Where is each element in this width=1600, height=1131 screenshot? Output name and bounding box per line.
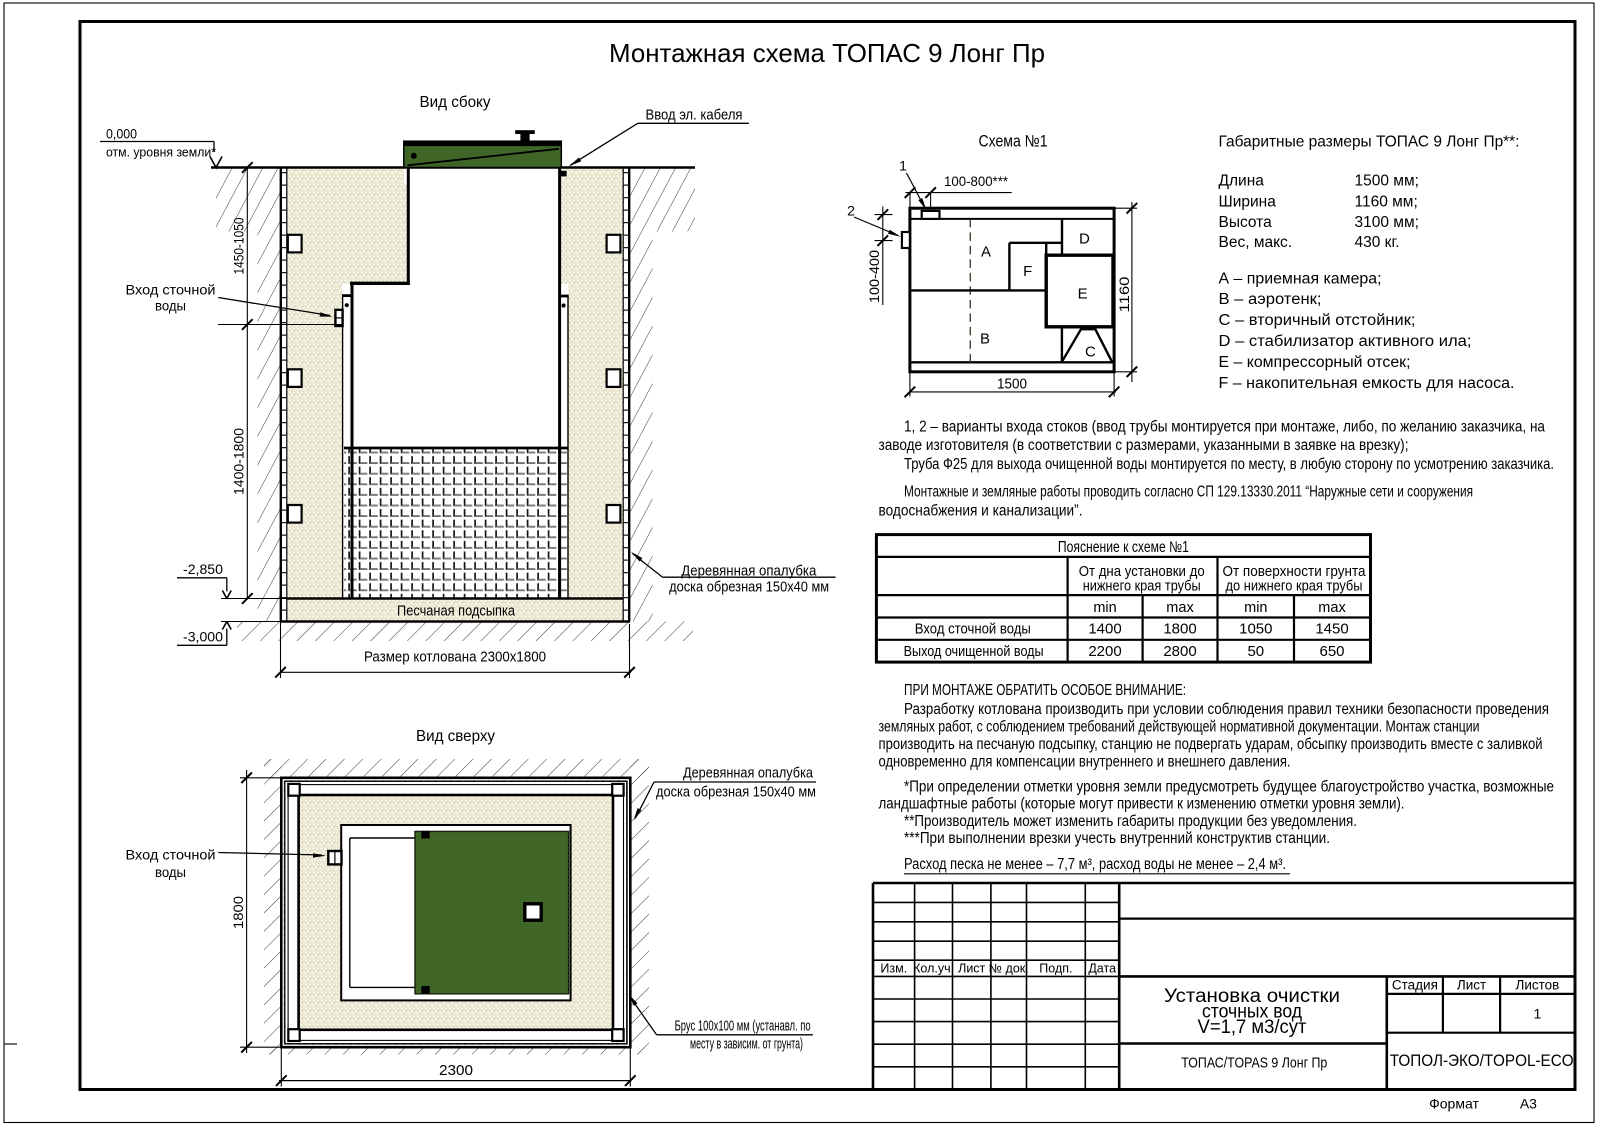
svg-text:Лист: Лист xyxy=(958,961,985,975)
svg-text:1800: 1800 xyxy=(230,896,246,929)
svg-text:1500 мм;: 1500 мм; xyxy=(1355,173,1419,190)
svg-text:100-400: 100-400 xyxy=(866,250,882,303)
svg-text:2300: 2300 xyxy=(439,1062,473,1079)
svg-text:№ док.: № док. xyxy=(989,961,1029,975)
svg-text:Песчаная подсыпка: Песчаная подсыпка xyxy=(397,603,516,620)
svg-text:1: 1 xyxy=(899,158,907,174)
svg-text:0,000: 0,000 xyxy=(106,126,137,142)
svg-text:заводе изготовителя (в соответ: заводе изготовителя (в соответствии с ра… xyxy=(879,437,1409,454)
svg-text:Формат: Формат xyxy=(1429,1095,1479,1111)
svg-text:Вид сбоку: Вид сбоку xyxy=(420,94,491,111)
svg-text:Ширина: Ширина xyxy=(1219,193,1277,210)
svg-text:Вход сточной: Вход сточной xyxy=(126,848,216,863)
svg-text:3100 мм;: 3100 мм; xyxy=(1355,214,1419,231)
svg-text:1400-1800: 1400-1800 xyxy=(231,428,247,495)
svg-text:1450-1050: 1450-1050 xyxy=(231,217,247,274)
svg-text:Ввод эл. кабеля: Ввод эл. кабеля xyxy=(646,108,743,124)
svg-text:50: 50 xyxy=(1247,643,1264,660)
svg-text:Стадия: Стадия xyxy=(1392,978,1438,993)
svg-text:Монтажные и земляные работы пр: Монтажные и земляные работы проводить со… xyxy=(904,483,1473,500)
svg-text:C: C xyxy=(1085,344,1096,361)
svg-text:Кол.уч.: Кол.уч. xyxy=(913,961,954,975)
svg-text:D – стабилизатор активного ила: D – стабилизатор активного ила; xyxy=(1219,333,1472,350)
svg-text:*При определении отметки уровн: *При определении отметки уровня земли пр… xyxy=(904,779,1554,796)
svg-text:нижнего края трубы: нижнего края трубы xyxy=(1083,578,1201,595)
svg-text:V=1,7 м3/сут: V=1,7 м3/сут xyxy=(1198,1017,1307,1038)
svg-text:430 кг.: 430 кг. xyxy=(1355,234,1400,251)
svg-text:B: B xyxy=(980,331,990,348)
svg-text:max: max xyxy=(1166,600,1194,616)
svg-text:**Производитель может изменить: **Производитель может изменить габариты … xyxy=(904,813,1357,830)
svg-text:1500: 1500 xyxy=(997,377,1027,393)
svg-text:-3,000: -3,000 xyxy=(183,629,223,645)
svg-text:min: min xyxy=(1093,600,1116,616)
svg-text:до нижнего края трубы: до нижнего края трубы xyxy=(1226,578,1363,595)
svg-text:2: 2 xyxy=(847,203,855,219)
svg-text:2200: 2200 xyxy=(1088,643,1121,660)
svg-text:воды: воды xyxy=(155,865,186,880)
svg-text:Расход песка не менее – 7,7 м³: Расход песка не менее – 7,7 м³, расход в… xyxy=(904,856,1286,873)
svg-text:2800: 2800 xyxy=(1163,643,1196,660)
svg-text:Лист: Лист xyxy=(1457,978,1486,993)
svg-text:ТОПОЛ-ЭКО/TOPOL-ECO: ТОПОЛ-ЭКО/TOPOL-ECO xyxy=(1390,1052,1574,1070)
svg-text:1800: 1800 xyxy=(1163,621,1196,638)
svg-text:А3: А3 xyxy=(1520,1095,1537,1111)
svg-text:Листов: Листов xyxy=(1515,978,1559,993)
svg-text:месту в зависим. от грунта): месту в зависим. от грунта) xyxy=(690,1037,803,1053)
svg-text:F – накопительная емкость для: F – накопительная емкость для насоса. xyxy=(1219,375,1515,392)
svg-text:Труба Ф25 для выхода очищенной: Труба Ф25 для выхода очищенной воды монт… xyxy=(904,456,1554,473)
svg-text:D: D xyxy=(1079,231,1090,248)
svg-text:1050: 1050 xyxy=(1239,621,1272,638)
svg-text:E: E xyxy=(1078,286,1088,303)
svg-text:Габаритные размеры ТОПАС 9 Лон: Габаритные размеры ТОПАС 9 Лонг Пр**: xyxy=(1219,134,1520,151)
svg-text:С – вторичный отстойник;: С – вторичный отстойник; xyxy=(1219,312,1416,329)
svg-text:производить на песчаную подсып: производить на песчаную подсыпку, станци… xyxy=(879,736,1543,753)
svg-text:Вес, макс.: Вес, макс. xyxy=(1219,234,1293,251)
svg-text:1, 2 – варианты входа стоков: 1, 2 – варианты входа стоков (ввод трубы… xyxy=(904,418,1545,435)
svg-text:земляных работ, с соблюдением: земляных работ, с соблюдением требований… xyxy=(879,718,1480,735)
svg-text:Дата: Дата xyxy=(1088,961,1116,975)
svg-text:Вход сточной воды: Вход сточной воды xyxy=(915,621,1031,638)
svg-text:min: min xyxy=(1244,600,1267,616)
svg-text:Деревянная опалубка: Деревянная опалубка xyxy=(683,765,814,781)
svg-text:водоснабжения и канализации”.: водоснабжения и канализации”. xyxy=(879,503,1083,520)
svg-text:1160 мм;: 1160 мм; xyxy=(1355,193,1418,210)
svg-text:Брус 100х100 мм (устанавл. по: Брус 100х100 мм (устанавл. по xyxy=(675,1019,811,1035)
svg-text:A: A xyxy=(981,244,991,261)
svg-text:650: 650 xyxy=(1319,643,1344,660)
svg-text:1: 1 xyxy=(1534,1006,1542,1022)
svg-text:Выход очищенной воды: Выход очищенной воды xyxy=(904,643,1044,660)
svg-text:Вид сверху: Вид сверху xyxy=(416,728,495,745)
svg-text:ТОПАС/TOPAS 9 Лонг Пр: ТОПАС/TOPAS 9 Лонг Пр xyxy=(1181,1055,1327,1072)
svg-text:E – компрессорный отсек;: E – компрессорный отсек; xyxy=(1219,354,1411,371)
svg-text:1160: 1160 xyxy=(1116,276,1132,312)
svg-text:Пояснение к схеме №1: Пояснение к схеме №1 xyxy=(1058,539,1189,556)
svg-text:-2,850: -2,850 xyxy=(183,561,223,577)
svg-text:F: F xyxy=(1023,263,1032,280)
svg-text:100-800***: 100-800*** xyxy=(944,173,1009,189)
svg-text:доска обрезная 150х40 мм: доска обрезная 150х40 мм xyxy=(669,580,829,596)
svg-text:Длина: Длина xyxy=(1219,173,1265,190)
svg-text:Подп.: Подп. xyxy=(1039,961,1072,975)
svg-text:Разработку котлована производи: Разработку котлована производить при усл… xyxy=(904,701,1549,718)
svg-text:ландшафтные работы (которые мо: ландшафтные работы (которые могут привес… xyxy=(879,796,1405,813)
svg-text:1450: 1450 xyxy=(1315,621,1348,638)
svg-text:Вход сточной: Вход сточной xyxy=(126,283,216,298)
svg-text:Размер котлована 2300х1800: Размер котлована 2300х1800 xyxy=(364,649,546,666)
svg-text:max: max xyxy=(1318,600,1346,616)
svg-text:Изм.: Изм. xyxy=(880,961,907,975)
svg-text:одновременно для компенсации в: одновременно для компенсации внутреннего… xyxy=(879,753,1291,770)
svg-text:воды: воды xyxy=(155,299,186,314)
svg-text:ПРИ МОНТАЖЕ ОБРАТИТЬ ОСОБОЕ ВН: ПРИ МОНТАЖЕ ОБРАТИТЬ ОСОБОЕ ВНИМАНИЕ: xyxy=(904,682,1186,699)
svg-text:отм. уровня земли*: отм. уровня земли* xyxy=(106,145,216,160)
svg-text:доска обрезная 150х40 мм: доска обрезная 150х40 мм xyxy=(656,785,816,801)
svg-text:Высота: Высота xyxy=(1219,214,1273,231)
svg-text:***При выполнении врезки учест: ***При выполнении врезки учесть внутренн… xyxy=(904,830,1330,847)
svg-text:Монтажная схема ТОПАС 9 Лонг П: Монтажная схема ТОПАС 9 Лонг Пр xyxy=(609,38,1045,68)
svg-text:А – приемная камера;: А – приемная камера; xyxy=(1219,270,1382,287)
svg-text:Схема №1: Схема №1 xyxy=(979,133,1048,151)
svg-text:В – аэротенк;: В – аэротенк; xyxy=(1219,291,1322,308)
svg-text:1400: 1400 xyxy=(1088,621,1121,638)
